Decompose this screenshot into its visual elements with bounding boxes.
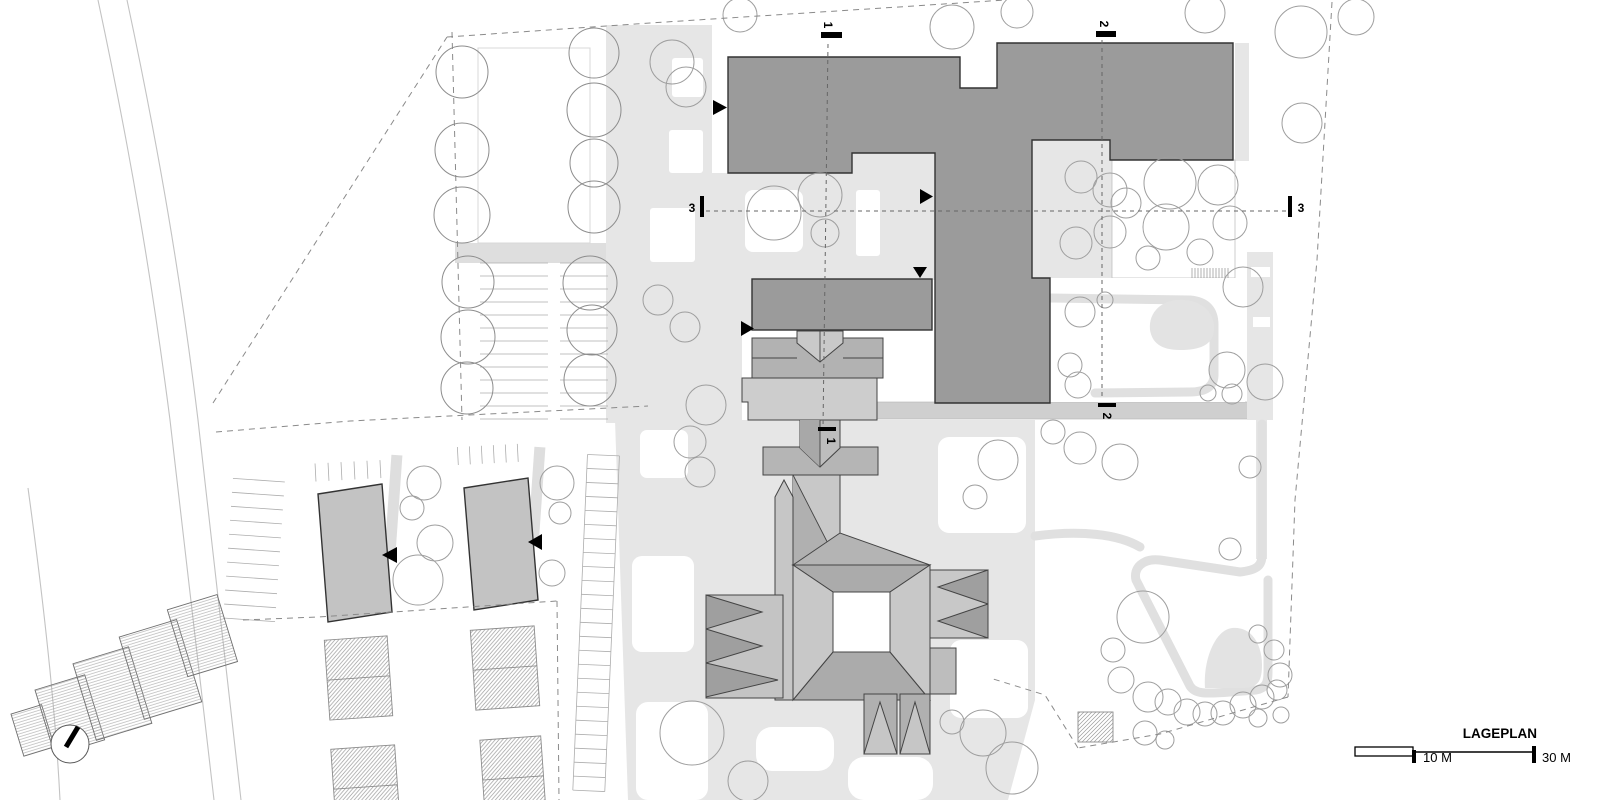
garden-ticks <box>315 444 519 482</box>
section-label: 3 <box>1298 201 1305 215</box>
survey-point-marker <box>51 725 89 763</box>
notch-court-paving <box>1032 140 1112 278</box>
section-label: 2 <box>1097 21 1111 28</box>
path-a <box>385 455 403 554</box>
section-marker-2-top: 2 <box>1096 21 1116 37</box>
scale-label-10m: 10 M <box>1423 750 1452 765</box>
mound <box>1205 628 1262 688</box>
parking-east-column <box>573 454 620 791</box>
parking-road-edge <box>223 478 285 621</box>
scale-bar-box <box>1355 747 1413 756</box>
entrance-arrow-icon <box>713 100 727 115</box>
inner-courtyard <box>833 592 890 652</box>
section-marker-3-right: 3 <box>1288 196 1305 217</box>
west-gable-row <box>706 595 783 698</box>
building-bar <box>752 279 932 330</box>
site-plan-page: 1 1 2 2 3 3 LAGEPLAN <box>0 0 1599 800</box>
building-low <box>742 378 877 420</box>
scale-label-30m: 30 M <box>1542 750 1571 765</box>
existing-buildings <box>0 595 248 764</box>
garden-north-notch <box>1112 160 1235 278</box>
site-plan-canvas: 1 1 2 2 3 3 LAGEPLAN <box>0 0 1599 800</box>
garden-south-east <box>1035 424 1268 693</box>
section-label: 3 <box>689 201 696 215</box>
east-gable-wing <box>930 570 988 638</box>
residential-building-b <box>464 478 538 610</box>
section-label: 2 <box>1100 413 1114 420</box>
parking-upper <box>478 48 608 419</box>
section-marker-1-top: 1 <box>821 22 842 38</box>
east-strip-a <box>1235 43 1249 161</box>
south-dormers <box>864 694 930 754</box>
east-west-path <box>858 402 1272 419</box>
section-label: 1 <box>821 22 835 29</box>
path-top-parking <box>455 243 608 263</box>
residential-building-a <box>318 484 392 622</box>
legend: LAGEPLAN 10 M 30 M <box>1355 726 1571 765</box>
plan-title: LAGEPLAN <box>1463 726 1537 741</box>
section-label: 1 <box>824 438 838 445</box>
